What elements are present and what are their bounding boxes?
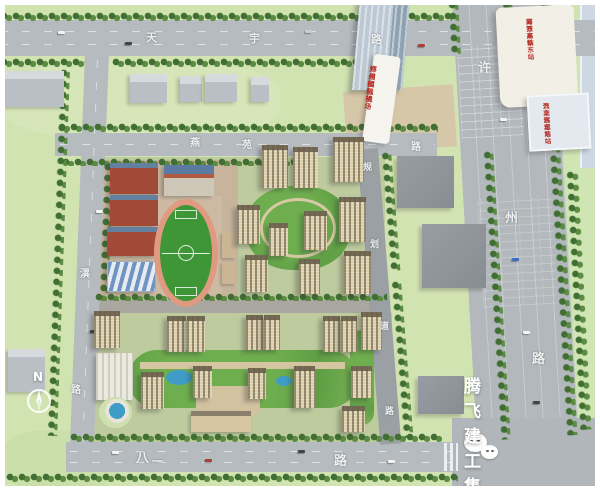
road-label-char: 路 [371,31,382,47]
field-penalty-area [175,287,197,296]
site-rendering: 许昌候机楼 郑州国际机场 郑万高铁东站 高铁东站 汽车客运东站 公交汽车站 天 … [0,0,600,491]
commercial-pad [418,376,464,414]
compass: N [18,370,62,418]
sign-column: 高铁东站 [524,18,534,46]
road-label-char: 潩 [80,265,90,280]
school-main-building [164,165,214,196]
watermark-text: 腾飞建工集团 [464,372,483,491]
water-feature [166,370,192,385]
residential-tower [304,211,327,250]
road-label-char: 划 [370,237,379,250]
bus-station-sign: 汽车客运东站 公交汽车站 [549,102,551,148]
hsr-station-sign: 郑万高铁东站 高铁东站 [532,18,535,78]
running-track [154,199,218,307]
commercial-pad [422,224,486,288]
car [298,450,305,453]
residential-tower [193,366,212,398]
residential-tower [262,145,288,188]
residential-tower [361,312,382,350]
road-label-char: 八 [136,447,149,466]
lane-line [70,462,458,463]
residential-tower [341,316,357,352]
residential-tower [246,315,263,350]
field-penalty-area [175,210,197,219]
road-label-char: 路 [532,348,545,367]
residential-tower [323,316,340,352]
road-label-char: 宇 [249,30,260,46]
road-label-char: 路 [334,450,347,469]
tree-row [112,57,362,67]
road-label-char: 州 [505,207,518,226]
water-feature [276,376,292,386]
warehouse-building [251,77,269,102]
residential-tower [342,406,365,432]
residential-tower [167,316,186,352]
entrance-gate [191,411,251,432]
airport-terminal-sign: 许昌候机楼 郑州国际机场 [368,66,378,135]
car [512,258,519,261]
car [533,401,540,404]
car [112,451,119,454]
hsr-station-building: 郑万高铁东站 高铁东站 [495,4,578,108]
commercial-building [96,353,133,400]
car [418,44,425,47]
compass-rose-icon [24,386,54,416]
road-label-char: 道 [380,319,389,332]
school-building-red [110,195,158,226]
tree-row [70,432,442,442]
residential-tower [344,251,371,294]
warehouse-building [130,74,167,103]
internal-road [88,300,390,313]
school-annex [222,262,236,284]
compass-north-label: N [33,370,43,384]
warehouse-building [2,71,64,107]
sign-column: 公交汽车站 [541,102,551,137]
pool-feature [99,397,132,428]
tree-row [0,57,85,67]
bus-station-building: 汽车客运东站 公交汽车站 [527,92,592,151]
residential-tower [94,311,120,348]
road-label-char: 规 [363,160,372,173]
residential-tower [333,137,364,182]
car [523,331,530,334]
residential-tower [299,259,320,294]
wechat-bubble-small [481,445,498,459]
car [205,459,212,462]
residential-tower [269,223,288,256]
tree-row [6,472,458,483]
crosswalk [444,443,458,471]
lane-line [70,451,458,452]
residential-tower [294,366,315,408]
car [58,31,65,34]
road-label-char: 天 [146,29,157,45]
car [500,118,507,121]
residential-tower [141,372,164,409]
school-building-red [110,163,158,194]
school-building-red [107,227,158,256]
residential-tower [245,255,268,292]
road-label-char: 一 [152,453,163,469]
bayi-road [66,442,462,472]
residential-tower [351,366,372,398]
field-center-circle [178,245,194,261]
road-label-char: 路 [71,381,81,396]
residential-tower [293,147,318,188]
school-gym [107,261,156,292]
road-label-char: 路 [411,138,421,153]
car [388,460,395,463]
residential-tower [237,205,260,244]
residential-tower [339,197,366,242]
school-annex [222,232,236,258]
road-label-char: 许 [478,57,491,76]
car [305,30,312,33]
residential-tower [264,315,280,350]
residential-tower [248,368,266,399]
warehouse-building [205,74,237,102]
warehouse-building [180,76,202,102]
road-label-char: 路 [385,404,394,417]
commercial-pad [397,156,454,208]
road-label-char: 苑 [242,136,252,151]
residential-tower [187,316,205,352]
car [125,42,132,45]
road-label-char: 燕 [190,134,200,149]
